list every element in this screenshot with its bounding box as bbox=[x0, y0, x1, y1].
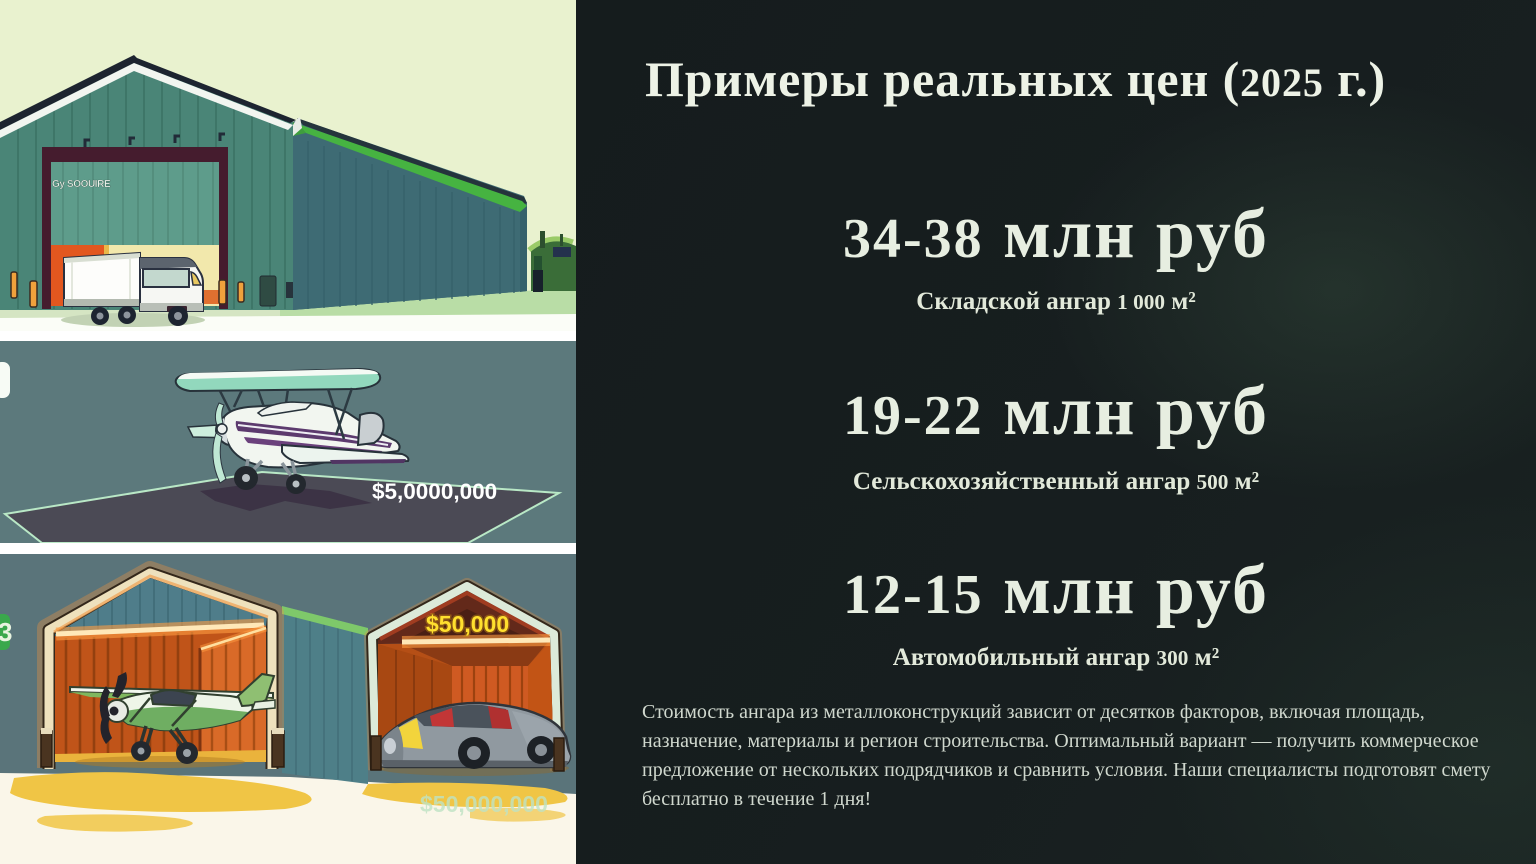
svg-text:$5,0000,000: $5,0000,000 bbox=[372, 479, 497, 504]
svg-text:$50,000: $50,000 bbox=[426, 611, 509, 637]
svg-text:$50,000,000: $50,000,000 bbox=[420, 791, 548, 817]
svg-text:3: 3 bbox=[0, 617, 12, 647]
svg-text:Gy SOOUIRE: Gy SOOUIRE bbox=[52, 179, 111, 190]
